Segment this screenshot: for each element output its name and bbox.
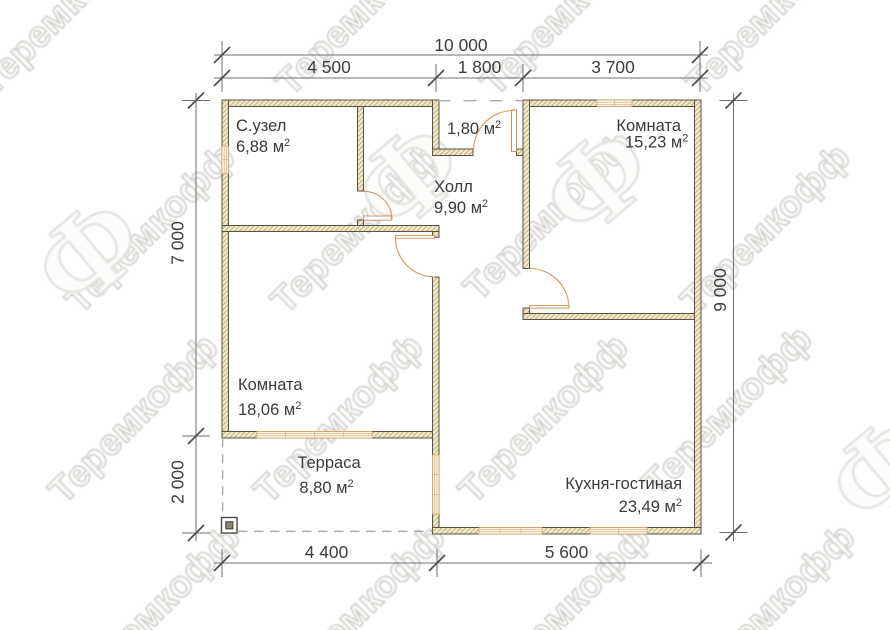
- svg-text:2 000: 2 000: [168, 460, 188, 504]
- svg-text:18,06 м2: 18,06 м2: [238, 400, 301, 419]
- svg-text:6,88 м2: 6,88 м2: [236, 137, 290, 156]
- svg-text:4 500: 4 500: [307, 57, 351, 77]
- svg-text:С.узел: С.узел: [236, 117, 286, 135]
- svg-text:3 700: 3 700: [591, 57, 635, 77]
- svg-text:1 800: 1 800: [458, 57, 502, 77]
- svg-text:8,80 м2: 8,80 м2: [299, 478, 353, 497]
- svg-text:9,90 м2: 9,90 м2: [434, 198, 488, 217]
- svg-text:9 000: 9 000: [710, 268, 730, 312]
- svg-text:4 400: 4 400: [305, 542, 349, 562]
- svg-text:1,80 м2: 1,80 м2: [447, 119, 501, 138]
- svg-text:Комната: Комната: [616, 117, 681, 135]
- svg-text:Комната: Комната: [238, 376, 303, 394]
- svg-text:10 000: 10 000: [434, 35, 487, 55]
- svg-text:7 000: 7 000: [168, 221, 188, 265]
- svg-text:Терраса: Терраса: [297, 454, 361, 472]
- svg-text:5 600: 5 600: [545, 542, 589, 562]
- svg-text:Холл: Холл: [434, 178, 473, 196]
- svg-text:23,49 м2: 23,49 м2: [619, 497, 682, 516]
- svg-text:Кухня-гостиная: Кухня-гостиная: [565, 475, 682, 493]
- svg-text:15,23 м2: 15,23 м2: [625, 133, 688, 152]
